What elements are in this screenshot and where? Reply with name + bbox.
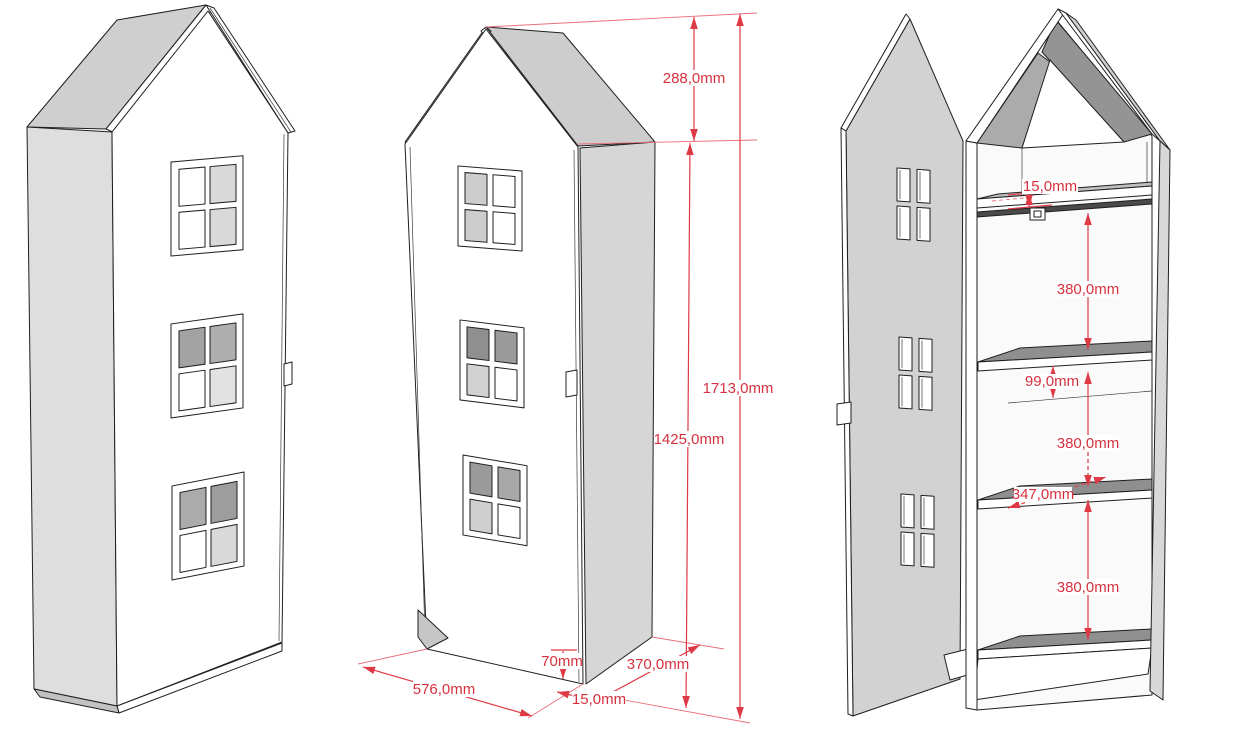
window-top xyxy=(458,166,522,251)
svg-text:576,0mm: 576,0mm xyxy=(413,681,476,698)
cabinet-carcass xyxy=(966,9,1170,710)
open-cabinet-view xyxy=(837,9,1170,716)
dim-top-panel-label: 15,0mm xyxy=(1022,178,1078,195)
svg-text:380,0mm: 380,0mm xyxy=(1057,579,1120,596)
door-handle xyxy=(837,402,851,425)
technical-drawing: 288,0mm 1713,0mm 1425,0mm 70mm 576,0mm 1… xyxy=(0,0,1239,743)
svg-text:288,0mm: 288,0mm xyxy=(663,70,726,87)
door-handle xyxy=(566,370,577,397)
dim-lower-section-label: 380,0mm xyxy=(1057,579,1120,596)
dim-door-thickness-label: 15,0mm xyxy=(572,691,626,708)
dim-side-depth-label: 370,0mm xyxy=(627,656,690,673)
window-top xyxy=(171,156,243,256)
front-left-stile xyxy=(966,141,977,710)
dim-upper-section-label: 380,0mm xyxy=(1057,281,1120,298)
svg-text:1713,0mm: 1713,0mm xyxy=(703,380,774,397)
dim-rail-drop-label: 99,0mm xyxy=(1025,373,1079,390)
svg-text:1425,0mm: 1425,0mm xyxy=(654,431,725,448)
dim-roof-height-label: 288,0mm xyxy=(663,70,726,87)
svg-text:99,0mm: 99,0mm xyxy=(1025,373,1079,390)
drawing-canvas: 288,0mm 1713,0mm 1425,0mm 70mm 576,0mm 1… xyxy=(0,0,1239,743)
window-bottom xyxy=(172,472,244,580)
window-bottom xyxy=(463,455,527,546)
dim-total-height-label: 1713,0mm xyxy=(703,380,774,397)
window-middle xyxy=(171,314,243,418)
svg-text:380,0mm: 380,0mm xyxy=(1057,281,1120,298)
open-door xyxy=(837,14,978,716)
right-side-panel xyxy=(1150,141,1170,700)
svg-text:347,0mm: 347,0mm xyxy=(1012,486,1075,503)
dim-middle-section-label: 380,0mm xyxy=(1057,435,1120,452)
dim-plinth-height-label: 70mm xyxy=(541,653,583,670)
dim-shelf-depth-label: 347,0mm xyxy=(1012,486,1075,503)
dimensioned-cabinet-view xyxy=(405,27,655,684)
window-middle xyxy=(460,320,524,408)
side-panel xyxy=(580,142,655,684)
dim-front-width-label: 576,0mm xyxy=(413,681,476,698)
rail-bracket-slot xyxy=(1034,211,1041,217)
svg-text:370,0mm: 370,0mm xyxy=(627,656,690,673)
svg-text:15,0mm: 15,0mm xyxy=(1023,178,1077,195)
dim-body-height-label: 1425,0mm xyxy=(654,431,725,448)
svg-text:380,0mm: 380,0mm xyxy=(1057,435,1120,452)
dim-body-height-line xyxy=(686,143,690,708)
closed-cabinet-view xyxy=(27,5,295,713)
side-panel xyxy=(27,127,117,706)
svg-text:70mm: 70mm xyxy=(541,653,583,670)
door-handle xyxy=(284,362,292,386)
svg-text:15,0mm: 15,0mm xyxy=(572,691,626,708)
